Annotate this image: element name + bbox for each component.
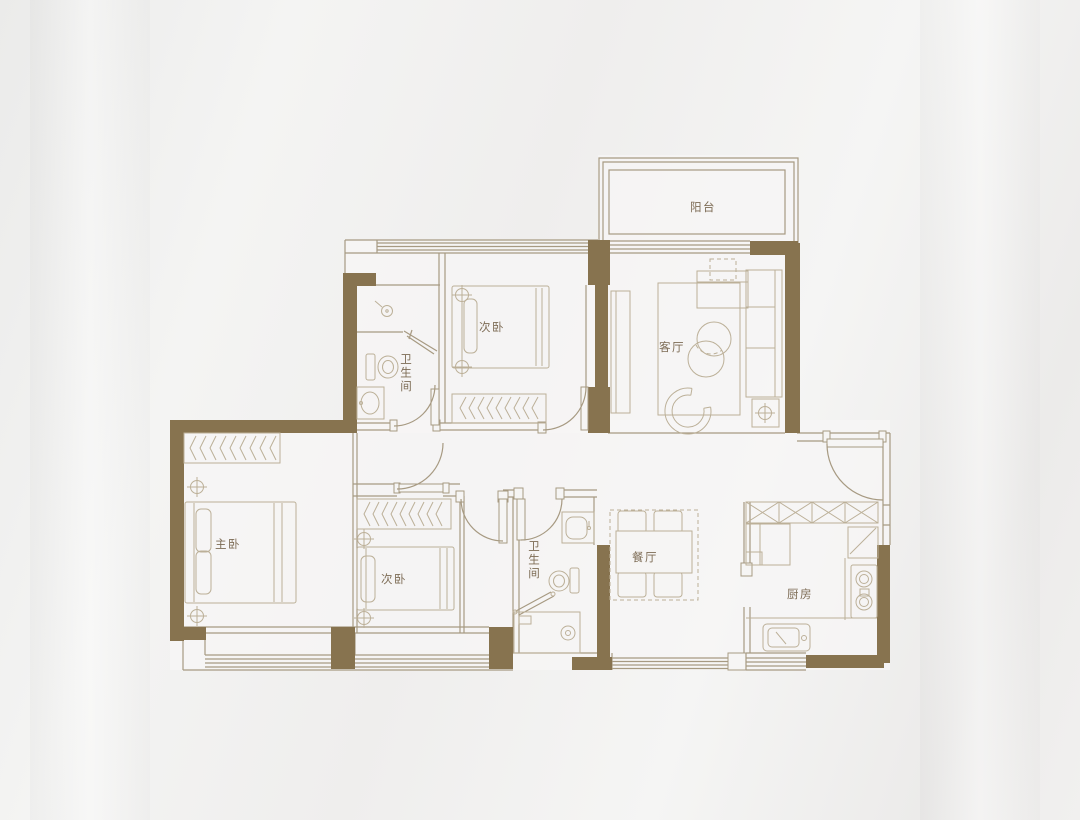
room-label-living: 客厅 <box>659 339 685 355</box>
room-label-bath-bottom: 卫生间 <box>525 540 541 581</box>
room-label-kitchen: 厨房 <box>787 586 813 602</box>
floor-plan: 阳台 客厅 次卧 卫生间 主卧 次卧 卫生间 餐厅 厨房 <box>0 0 1080 820</box>
room-label-bedroom-bottom: 次卧 <box>381 571 407 587</box>
floor-area <box>170 155 890 670</box>
room-label-bedroom-top: 次卧 <box>479 319 505 335</box>
floor-plan-drawing <box>0 0 1080 820</box>
room-label-balcony: 阳台 <box>690 199 716 215</box>
room-label-master: 主卧 <box>215 536 241 552</box>
room-label-dining: 餐厅 <box>632 549 658 565</box>
room-label-bath-top: 卫生间 <box>397 353 413 394</box>
